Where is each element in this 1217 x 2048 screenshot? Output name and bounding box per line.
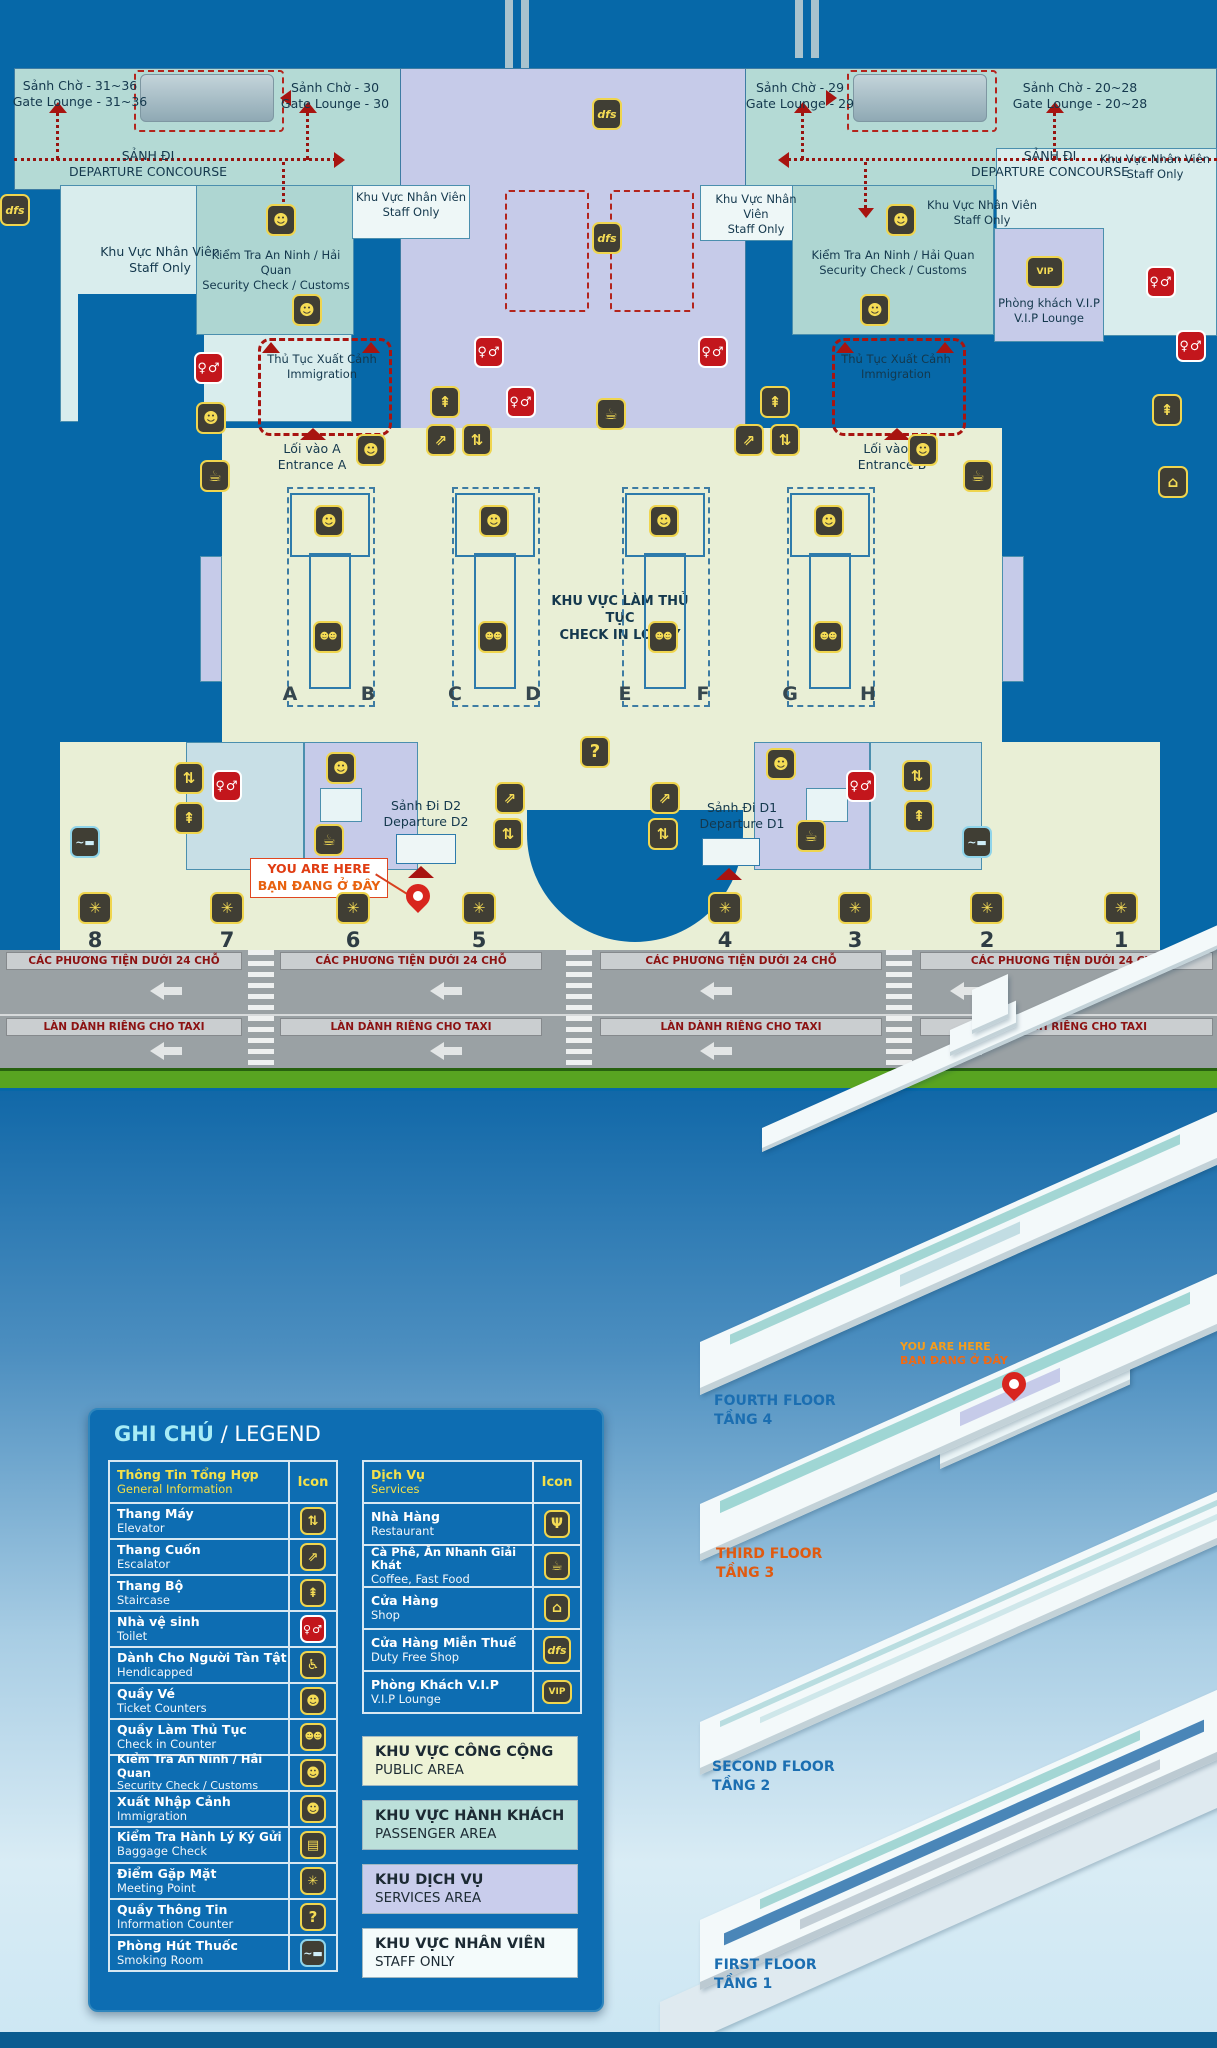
bottom-bar [0, 2032, 1217, 2048]
legend-row-restaurant: Nhà HàngRestaurant Ψ [364, 1502, 580, 1544]
legend-panel: GHI CHÚ / LEGEND Thông Tin Tổng HợpGener… [88, 1408, 604, 2012]
elevator-icon: ⇅ [300, 1507, 326, 1535]
legend-services-table: Dịch VụServices Icon Nhà HàngRestaurant … [362, 1460, 582, 1714]
legend-row-meeting-point: Điểm Gặp MặtMeeting Point ✳ [110, 1862, 336, 1898]
legend-general-header: Thông Tin Tổng HợpGeneral Information Ic… [110, 1462, 336, 1502]
security-check-icon: ☻ [300, 1759, 326, 1787]
meeting-point-icon: ✳ [300, 1867, 326, 1895]
legend-services-header: Dịch VụServices Icon [364, 1462, 580, 1502]
escalator-icon: ⇗ [300, 1543, 326, 1571]
information-icon: ? [300, 1903, 326, 1931]
legend-row-information-counter: Quầy Thông TinInformation Counter ? [110, 1898, 336, 1934]
second-floor-label: SECOND FLOORTẦNG 2 [712, 1758, 835, 1796]
legend-row-shop: Cửa HàngShop ⌂ [364, 1586, 580, 1628]
legend-row-security-check: Kiểm Tra An Ninh / Hải QuanSecurity Chec… [110, 1754, 336, 1790]
baggage-check-icon: ▤ [300, 1831, 326, 1859]
airport-terminal-map: Sảnh Chờ - 31~36Gate Lounge - 31~36 Sảnh… [0, 0, 1217, 2048]
staircase-icon: ⇞ [300, 1579, 326, 1607]
coffee-icon: ☕ [544, 1552, 570, 1580]
legend-row-ticket-counters: Quầy VéTicket Counters ☻ [110, 1682, 336, 1718]
legend-row-toilet: Nhà vệ sinhToilet ♀♂ [110, 1610, 336, 1646]
ticket-counter-icon: ☻ [300, 1687, 326, 1715]
legend-area-passenger: KHU VỰC HÀNH KHÁCHPASSENGER AREA [362, 1800, 578, 1850]
toilet-icon: ♀♂ [300, 1615, 326, 1643]
restaurant-icon: Ψ [544, 1510, 570, 1538]
third-floor-label: THIRD FLOORTẦNG 3 [716, 1545, 822, 1583]
legend-row-handicapped: Dành Cho Người Tàn TậtHendicapped ♿ [110, 1646, 336, 1682]
duty-free-icon: dfs [543, 1636, 571, 1664]
legend-row-vip-lounge: Phòng Khách V.I.PV.I.P Lounge VIP [364, 1670, 580, 1712]
vip-lounge-icon: VIP [542, 1680, 572, 1704]
legend-row-coffee: Cà Phê, Ăn Nhanh Giải KhátCoffee, Fast F… [364, 1544, 580, 1586]
legend-general-table: Thông Tin Tổng HợpGeneral Information Ic… [108, 1460, 338, 1972]
legend-title: GHI CHÚ / LEGEND [114, 1422, 321, 1446]
first-floor-label: FIRST FLOORTẦNG 1 [714, 1956, 817, 1994]
checkin-counter-icon: ☻☻ [300, 1723, 326, 1751]
legend-area-services: KHU DỊCH VỤSERVICES AREA [362, 1864, 578, 1914]
legend-row-checkin-counter: Quầy Làm Thủ TụcCheck in Counter ☻☻ [110, 1718, 336, 1754]
legend-row-immigration: Xuất Nhập CảnhImmigration ☻ [110, 1790, 336, 1826]
fourth-floor-label: FOURTH FLOORTẦNG 4 [714, 1392, 836, 1430]
terminal-isometric-view: YOU ARE HERE BẠN ĐANG Ở ĐÂY FOURTH FLOOR… [0, 0, 1217, 2048]
iso-you-are-here-label: YOU ARE HERE BẠN ĐANG Ở ĐÂY [900, 1340, 1020, 1369]
legend-row-baggage-check: Kiểm Tra Hành Lý Ký GửiBaggage Check ▤ [110, 1826, 336, 1862]
legend-area-staff: KHU VỰC NHÂN VIÊNSTAFF ONLY [362, 1928, 578, 1978]
legend-row-duty-free: Cửa Hàng Miễn ThuếDuty Free Shop dfs [364, 1628, 580, 1670]
legend-area-public: KHU VỰC CÔNG CỘNGPUBLIC AREA [362, 1736, 578, 1786]
shop-icon: ⌂ [544, 1594, 570, 1622]
legend-row-staircase: Thang BộStaircase ⇞ [110, 1574, 336, 1610]
legend-row-escalator: Thang CuốnEscalator ⇗ [110, 1538, 336, 1574]
immigration-icon: ☻ [300, 1795, 326, 1823]
handicapped-icon: ♿ [300, 1651, 326, 1679]
legend-row-elevator: Thang MáyElevator ⇅ [110, 1502, 336, 1538]
smoking-icon: ~▬ [300, 1939, 326, 1967]
legend-row-smoking-room: Phòng Hút ThuốcSmoking Room ~▬ [110, 1934, 336, 1970]
